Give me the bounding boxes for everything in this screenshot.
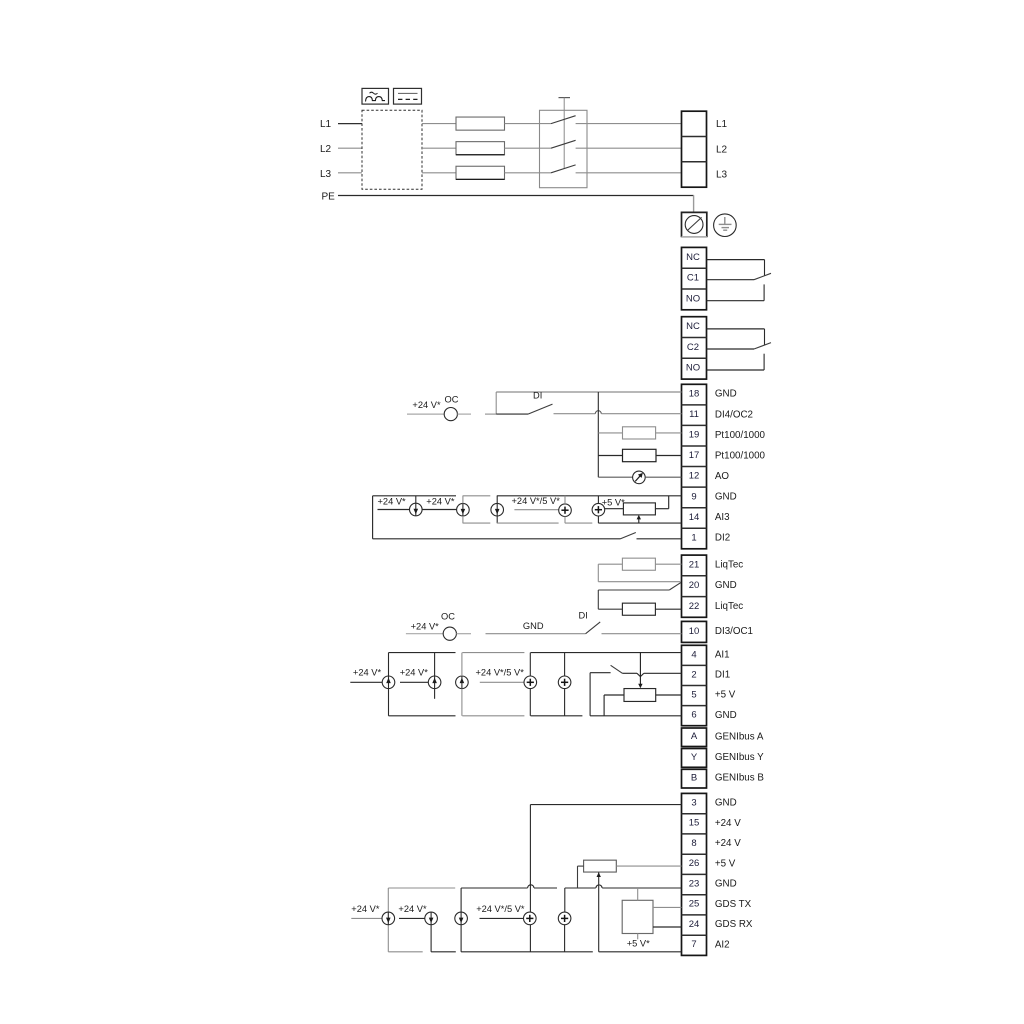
svg-text:+24 V*: +24 V* xyxy=(412,400,441,410)
svg-text:+24 V*: +24 V* xyxy=(378,496,407,506)
svg-text:L3: L3 xyxy=(320,169,332,180)
svg-text:NO: NO xyxy=(686,363,700,374)
svg-text:8: 8 xyxy=(691,838,696,849)
svg-text:+24 V*: +24 V* xyxy=(353,667,382,677)
svg-text:+24 V*: +24 V* xyxy=(411,621,440,631)
svg-text:24: 24 xyxy=(689,919,700,930)
svg-text:GND: GND xyxy=(715,580,737,591)
svg-text:GENIbus Y: GENIbus Y xyxy=(715,752,764,763)
svg-text:L2: L2 xyxy=(716,144,728,155)
svg-text:L3: L3 xyxy=(716,170,728,181)
svg-text:2: 2 xyxy=(691,669,696,680)
svg-text:LiqTec: LiqTec xyxy=(715,559,743,570)
svg-text:Pt100/1000: Pt100/1000 xyxy=(715,450,766,461)
svg-text:LiqTec: LiqTec xyxy=(715,601,743,612)
svg-text:A: A xyxy=(691,731,698,742)
svg-text:DI2: DI2 xyxy=(715,533,730,544)
svg-text:26: 26 xyxy=(689,858,700,869)
svg-text:AO: AO xyxy=(715,471,730,482)
svg-text:19: 19 xyxy=(689,430,700,441)
svg-text:OC: OC xyxy=(445,394,459,404)
svg-text:1: 1 xyxy=(691,532,696,543)
svg-text:22: 22 xyxy=(689,601,700,612)
svg-text:GND: GND xyxy=(715,710,737,721)
svg-text:14: 14 xyxy=(689,512,700,523)
svg-text:18: 18 xyxy=(689,389,700,400)
svg-text:GND: GND xyxy=(715,798,737,809)
svg-text:DI4/OC2: DI4/OC2 xyxy=(715,409,753,420)
svg-text:+24 V*: +24 V* xyxy=(400,667,429,677)
svg-text:21: 21 xyxy=(689,559,700,570)
svg-text:25: 25 xyxy=(689,899,700,910)
svg-text:GND: GND xyxy=(715,389,737,400)
svg-text:GND: GND xyxy=(715,879,737,890)
svg-text:15: 15 xyxy=(689,818,700,829)
svg-text:GND: GND xyxy=(715,492,737,503)
svg-text:GDS TX: GDS TX xyxy=(715,899,752,910)
svg-text:GND: GND xyxy=(523,621,544,631)
svg-text:DI1: DI1 xyxy=(715,670,730,681)
svg-text:+5 V: +5 V xyxy=(715,858,736,869)
svg-text:23: 23 xyxy=(689,878,700,889)
svg-text:C2: C2 xyxy=(687,342,699,353)
svg-text:DI: DI xyxy=(579,611,588,621)
svg-text:9: 9 xyxy=(691,491,696,502)
svg-text:B: B xyxy=(691,773,697,784)
svg-text:L1: L1 xyxy=(716,119,728,130)
svg-text:+5 V*: +5 V* xyxy=(627,939,650,949)
svg-text:OC: OC xyxy=(441,612,455,622)
svg-text:17: 17 xyxy=(689,450,700,461)
svg-text:+24 V: +24 V xyxy=(715,838,741,849)
svg-text:+24 V*/5 V*: +24 V*/5 V* xyxy=(512,496,561,506)
svg-text:L1: L1 xyxy=(320,119,332,130)
svg-text:C1: C1 xyxy=(687,273,699,284)
svg-text:+5 V: +5 V xyxy=(715,690,736,701)
svg-text:PE: PE xyxy=(322,192,336,203)
svg-text:AI3: AI3 xyxy=(715,512,730,523)
svg-text:20: 20 xyxy=(689,580,700,591)
svg-text:DI: DI xyxy=(533,391,542,401)
svg-text:4: 4 xyxy=(691,649,696,660)
svg-text:+24 V*/5 V*: +24 V*/5 V* xyxy=(476,904,525,914)
svg-text:12: 12 xyxy=(689,471,700,482)
svg-text:AI2: AI2 xyxy=(715,939,730,950)
svg-text:DI3/OC1: DI3/OC1 xyxy=(715,626,753,637)
svg-text:+24 V: +24 V xyxy=(715,818,741,829)
svg-text:NC: NC xyxy=(686,321,700,332)
svg-text:10: 10 xyxy=(689,626,700,637)
svg-text:GDS RX: GDS RX xyxy=(715,919,753,930)
svg-text:+24 V*: +24 V* xyxy=(398,904,427,914)
svg-text:Pt100/1000: Pt100/1000 xyxy=(715,430,766,441)
svg-text:+24 V*: +24 V* xyxy=(426,496,455,506)
svg-text:Y: Y xyxy=(691,752,698,763)
svg-text:11: 11 xyxy=(689,409,699,420)
svg-text:3: 3 xyxy=(691,797,696,808)
svg-text:GENIbus B: GENIbus B xyxy=(715,773,764,784)
svg-text:NO: NO xyxy=(686,293,700,304)
svg-text:AI1: AI1 xyxy=(715,650,730,661)
svg-text:+24 V*: +24 V* xyxy=(351,904,380,914)
svg-text:6: 6 xyxy=(691,710,696,721)
svg-text:5: 5 xyxy=(691,689,696,700)
svg-text:+24 V*/5 V*: +24 V*/5 V* xyxy=(476,667,525,677)
svg-text:GENIbus A: GENIbus A xyxy=(715,731,764,742)
svg-text:7: 7 xyxy=(691,939,696,950)
svg-text:+5 V*: +5 V* xyxy=(602,498,625,508)
svg-text:NC: NC xyxy=(686,252,700,263)
svg-text:L2: L2 xyxy=(320,144,332,155)
